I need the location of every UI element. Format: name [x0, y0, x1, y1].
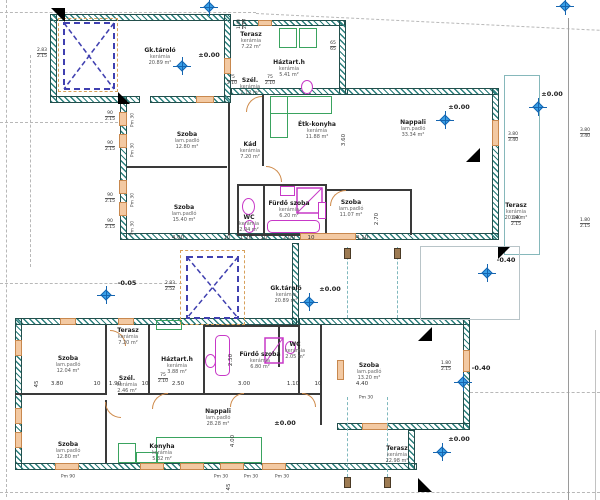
column-post — [384, 477, 391, 488]
window-size-label: 1.802.15 — [511, 216, 521, 228]
window-size-label: 902.15 — [105, 219, 115, 231]
section-arrow-icon — [418, 327, 432, 341]
window-marker — [119, 112, 127, 126]
dimension: 2.70 — [374, 213, 380, 225]
dimension: 1.10 — [287, 381, 299, 387]
section-arrow-icon — [418, 478, 432, 492]
room-area: 22.98 m² — [386, 458, 409, 464]
room-area: 15.40 m² — [172, 217, 197, 223]
window-size-label: 1.402.19 — [237, 19, 249, 29]
window-height: 2.15 — [105, 118, 115, 123]
window-size-label: 6565 — [330, 41, 336, 53]
level-marker: ±0.00 — [198, 51, 219, 59]
dimension: 10 — [315, 381, 322, 387]
room-label: Szobalam.padló12.80 m² — [56, 442, 81, 460]
wall — [408, 430, 415, 470]
door-opening — [118, 318, 134, 325]
boiler-fixture — [318, 202, 326, 219]
window-marker — [15, 408, 22, 424]
partition — [410, 189, 412, 235]
window-size-label: 3.803.40 — [508, 132, 518, 144]
room-label: Szobalam.padló13.20 m² — [357, 363, 382, 381]
room-area: 12.80 m² — [56, 454, 81, 460]
window-size-label: 902.15 — [105, 111, 115, 123]
wall — [233, 20, 345, 26]
reference-line — [0, 122, 118, 123]
wall — [337, 423, 470, 430]
dimension: 3.80 — [51, 381, 63, 387]
room-label: Szobalam.padló12.80 m² — [175, 132, 200, 150]
window-marker — [337, 360, 344, 380]
window-height: 3.40 — [508, 139, 518, 144]
room-label: Nappalilam.padló28.28 m² — [205, 409, 231, 427]
room-label: Fürdő szobakerámia6.80 m² — [239, 352, 280, 370]
room-label: Teraszkerámia7.22 m² — [240, 32, 261, 50]
parapet-tag: Pm 30 — [214, 475, 228, 480]
reference-line — [0, 12, 256, 13]
room-label: Gk.tárolókerámia20.89 m² — [144, 48, 175, 66]
window-marker — [362, 423, 388, 430]
room-label: Fürdő szobakerámia6.20 m² — [268, 201, 309, 219]
room-area: 11.07 m² — [339, 212, 364, 218]
door-arc — [152, 393, 168, 409]
dimension: 4.00 — [230, 435, 236, 447]
section-arrow-icon — [118, 92, 130, 104]
survey-marker-icon — [202, 0, 216, 14]
partition — [228, 103, 230, 235]
window-marker — [119, 134, 127, 148]
column-post — [344, 477, 351, 488]
door-size-label: 752.10 — [227, 75, 237, 87]
parapet-tag: Pm 30 — [275, 475, 289, 480]
survey-marker-icon — [558, 0, 572, 13]
parapet-tag: Pm 30 — [244, 475, 258, 480]
door-arc — [105, 402, 121, 418]
partition — [105, 325, 107, 395]
window-marker — [492, 120, 499, 146]
dimension: 10 — [308, 235, 315, 241]
door-opening — [196, 96, 214, 103]
survey-marker-icon — [456, 375, 470, 389]
sink-fixture — [242, 198, 255, 215]
dimension: 10 — [142, 381, 149, 387]
window-marker — [119, 202, 127, 216]
reference-line — [0, 492, 600, 493]
reference-line — [0, 283, 182, 284]
parapet-tag: Pm 30 — [131, 221, 136, 235]
parapet-tag: Pm 30 — [131, 143, 136, 157]
survey-marker-icon — [480, 266, 494, 280]
level-marker: ±0.00 — [274, 419, 295, 427]
dimension: 2.00 — [283, 235, 295, 241]
dimension: 3.00 — [238, 381, 250, 387]
dimension: 2.50 — [172, 381, 184, 387]
door-arc — [230, 393, 244, 407]
survey-marker-icon — [531, 100, 545, 114]
door-arc — [266, 166, 282, 182]
room-label: Kádkerámia7.20 m² — [240, 142, 260, 160]
room-label: Étk-konyhakerámia11.88 m² — [298, 122, 336, 140]
survey-marker-icon — [438, 113, 452, 127]
survey-marker-icon — [302, 295, 316, 309]
reference-line — [30, 55, 31, 267]
room-area: 7.20 m² — [117, 340, 138, 346]
window-size-label: 2.832.52 — [165, 281, 175, 293]
window-marker — [220, 463, 244, 470]
room-label: Szobalam.padló15.40 m² — [172, 205, 197, 223]
room-label: WCkerámia2.05 m² — [285, 342, 305, 360]
window-size-label: 1.802.15 — [441, 361, 451, 373]
dimension: 3.60 — [341, 134, 347, 146]
survey-marker-icon — [99, 288, 113, 302]
reference-line — [470, 392, 600, 393]
door-opening — [258, 20, 272, 26]
window-height: 2.15 — [580, 225, 590, 230]
room-label: Gk.tárolókerámia20.89 m² — [270, 286, 301, 304]
window-height: 2.15 — [105, 200, 115, 205]
room-area: 5.32 m² — [149, 456, 174, 462]
page-border-line — [568, 18, 569, 500]
window-marker — [119, 180, 127, 194]
wall — [339, 20, 346, 95]
wall — [492, 88, 499, 240]
bathtub-fixture — [267, 220, 320, 233]
window-height: 2.15 — [37, 55, 47, 60]
partition — [263, 186, 265, 234]
door-opening — [60, 318, 76, 325]
room-label: Nappalilam.padló33.34 m² — [400, 120, 426, 138]
room-label: Szobalam.padló11.07 m² — [339, 200, 364, 218]
window-height: 3.40 — [580, 135, 590, 140]
room-area: 5.41 m² — [273, 72, 305, 78]
dimension: 2.50 — [228, 354, 234, 366]
dimension: 1.20 — [240, 235, 252, 241]
column-post — [344, 248, 351, 259]
carport-line — [387, 397, 388, 477]
floor-plan-canvas: Gk.tárolókerámia20.89 m² Teraszkerámia7.… — [0, 0, 600, 500]
room-area: 2.12 m² — [240, 90, 260, 96]
dimension: 4.00 — [172, 235, 184, 241]
room-area: 11.88 m² — [298, 134, 336, 140]
window-height: 2.15 — [105, 226, 115, 231]
door-arc — [246, 96, 262, 112]
sink-fixture — [301, 80, 313, 94]
carport-line — [347, 397, 348, 477]
window-size-label: 902.15 — [105, 193, 115, 205]
appliance — [279, 28, 297, 48]
window-height: 2.15 — [511, 223, 521, 228]
reference-line — [6, 0, 7, 497]
parapet-tag: Pm 30 — [131, 113, 136, 127]
door-size-label: 752.10 — [158, 373, 168, 385]
page-border-line — [595, 330, 596, 500]
window-height: 2.15 — [105, 148, 115, 153]
room-label: Teraszkerámia22.98 m² — [386, 446, 409, 464]
wall — [50, 14, 57, 103]
dimension: 10 — [224, 235, 231, 241]
dimension: 45 — [34, 381, 40, 388]
room-area: 12.04 m² — [56, 368, 81, 374]
window-marker — [15, 432, 22, 448]
kitchen-counter — [118, 443, 136, 463]
dimension: 4.40 — [356, 381, 368, 387]
washer-fixture — [280, 186, 295, 196]
room-label: Háztart.hkerámia5.41 m² — [273, 60, 305, 78]
door-opening — [224, 58, 231, 74]
room-label: Szél.kerámia2.12 m² — [240, 78, 260, 96]
room-area: 20.89 m² — [270, 298, 301, 304]
room-area: 28.28 m² — [205, 421, 231, 427]
window-size-label: 3.803.40 — [580, 128, 590, 140]
room-area: 2.46 m² — [117, 388, 137, 394]
kitchen-counter — [270, 96, 288, 138]
skylight-x-box — [186, 256, 239, 319]
door-size-label: 752.10 — [265, 75, 275, 87]
partition — [127, 166, 227, 168]
parapet-tag: Pm 90 — [61, 475, 75, 480]
window-size-label: 1.802.15 — [580, 218, 590, 230]
parapet-tag: Pm 30 — [359, 396, 373, 401]
window-marker — [55, 463, 79, 470]
room-area: 6.20 m² — [268, 213, 309, 219]
dimension: 10 — [261, 235, 268, 241]
dimension: 45 — [226, 484, 232, 491]
window-marker — [180, 463, 204, 470]
wall — [463, 318, 470, 430]
level-marker: -0.40 — [497, 256, 516, 264]
section-arrow-icon — [466, 148, 480, 162]
room-area: 2.05 m² — [285, 354, 305, 360]
window-height: 65 — [330, 48, 336, 53]
sink-fixture — [205, 354, 216, 368]
level-marker: -0.05 — [118, 279, 137, 287]
appliance — [299, 28, 317, 48]
level-marker: ±0.00 — [448, 103, 469, 111]
section-arrow-icon — [51, 8, 65, 22]
level-marker: -0.40 — [472, 364, 491, 372]
window-size-label: 902.15 — [105, 141, 115, 153]
room-area: 6.80 m² — [239, 364, 280, 370]
window-marker — [262, 463, 286, 470]
door-height: 2.10 — [158, 380, 168, 385]
survey-marker-icon — [435, 445, 449, 459]
level-marker: ±0.00 — [319, 285, 340, 293]
dimension: 10 — [94, 381, 101, 387]
room-area: 7.22 m² — [240, 44, 261, 50]
door-arc — [302, 393, 316, 407]
window-size-label: 2.832.15 — [37, 48, 47, 60]
column-post — [394, 248, 401, 259]
level-marker: ±0.00 — [541, 90, 562, 98]
room-area: 20.89 m² — [144, 60, 175, 66]
room-area: 33.34 m² — [400, 132, 426, 138]
dimension: 4.10 — [356, 235, 368, 241]
room-label: Szobalam.padló12.04 m² — [56, 356, 81, 374]
room-label: Teraszkerámia7.20 m² — [117, 328, 138, 346]
parapet-tag: Pm 30 — [131, 193, 136, 207]
window-height: 2.15 — [441, 368, 451, 373]
level-marker: ±0.00 — [448, 435, 469, 443]
room-area: 12.80 m² — [175, 144, 200, 150]
door-height: 2.10 — [265, 82, 275, 87]
window-height: 2.52 — [165, 288, 175, 293]
room-label: WCkerámia2.04 m² — [239, 215, 259, 233]
room-area: 2.04 m² — [239, 227, 259, 233]
wall — [345, 88, 499, 95]
partition — [320, 325, 322, 425]
window-marker — [140, 463, 164, 470]
room-label: Konyhakerámia5.32 m² — [149, 444, 174, 462]
survey-marker-icon — [175, 59, 189, 73]
dimension: 1.90 — [109, 381, 121, 387]
appliance — [156, 320, 182, 330]
skylight-x-box — [63, 22, 115, 90]
door-height: 2.10 — [227, 82, 237, 87]
wall — [150, 96, 231, 103]
room-area: 7.20 m² — [240, 154, 260, 160]
window-marker — [463, 350, 470, 372]
partition — [15, 393, 105, 395]
window-marker — [15, 340, 22, 356]
partition — [262, 95, 264, 166]
window-height: 2.19 — [244, 19, 249, 29]
